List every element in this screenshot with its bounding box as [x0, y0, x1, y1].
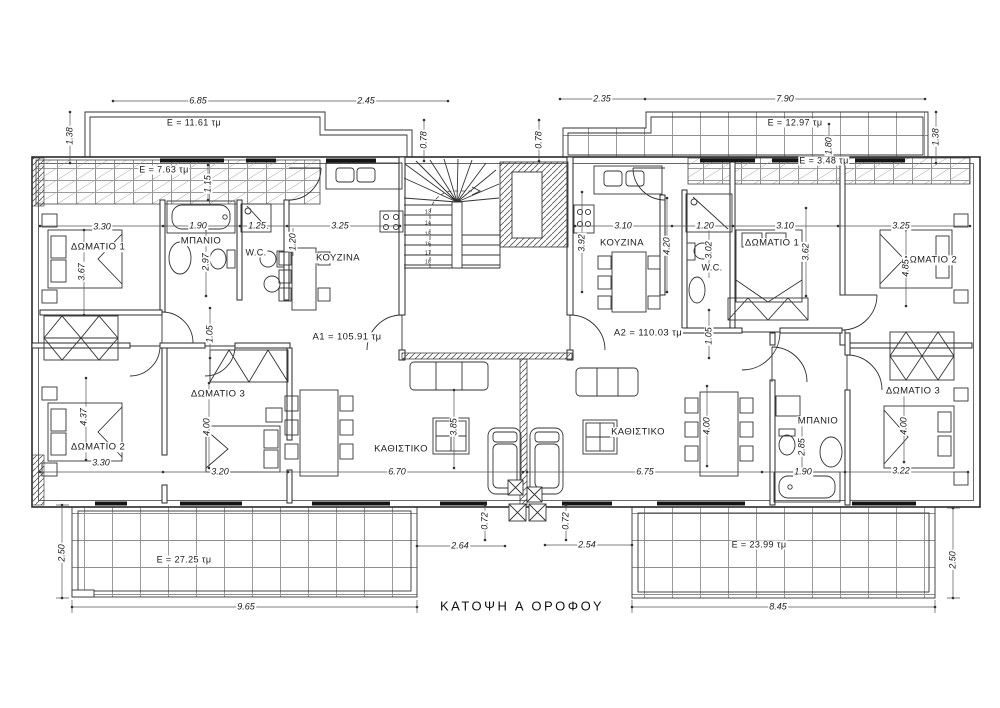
covered-veranda-left	[36, 160, 320, 204]
floor-plan-page: 6.852.452.357.901.381.38E = 11.61 τμE = …	[0, 0, 1000, 708]
balcony-bottom-left	[72, 505, 417, 597]
elevator-shaft	[500, 162, 568, 247]
balcony-top-left	[85, 112, 412, 163]
balcony-top-right	[563, 112, 928, 160]
drawing-title: ΚΑΤΟΨΗ Α ΟΡΟΦΟΥ	[440, 599, 604, 614]
balcony-bottom-right	[632, 507, 935, 598]
